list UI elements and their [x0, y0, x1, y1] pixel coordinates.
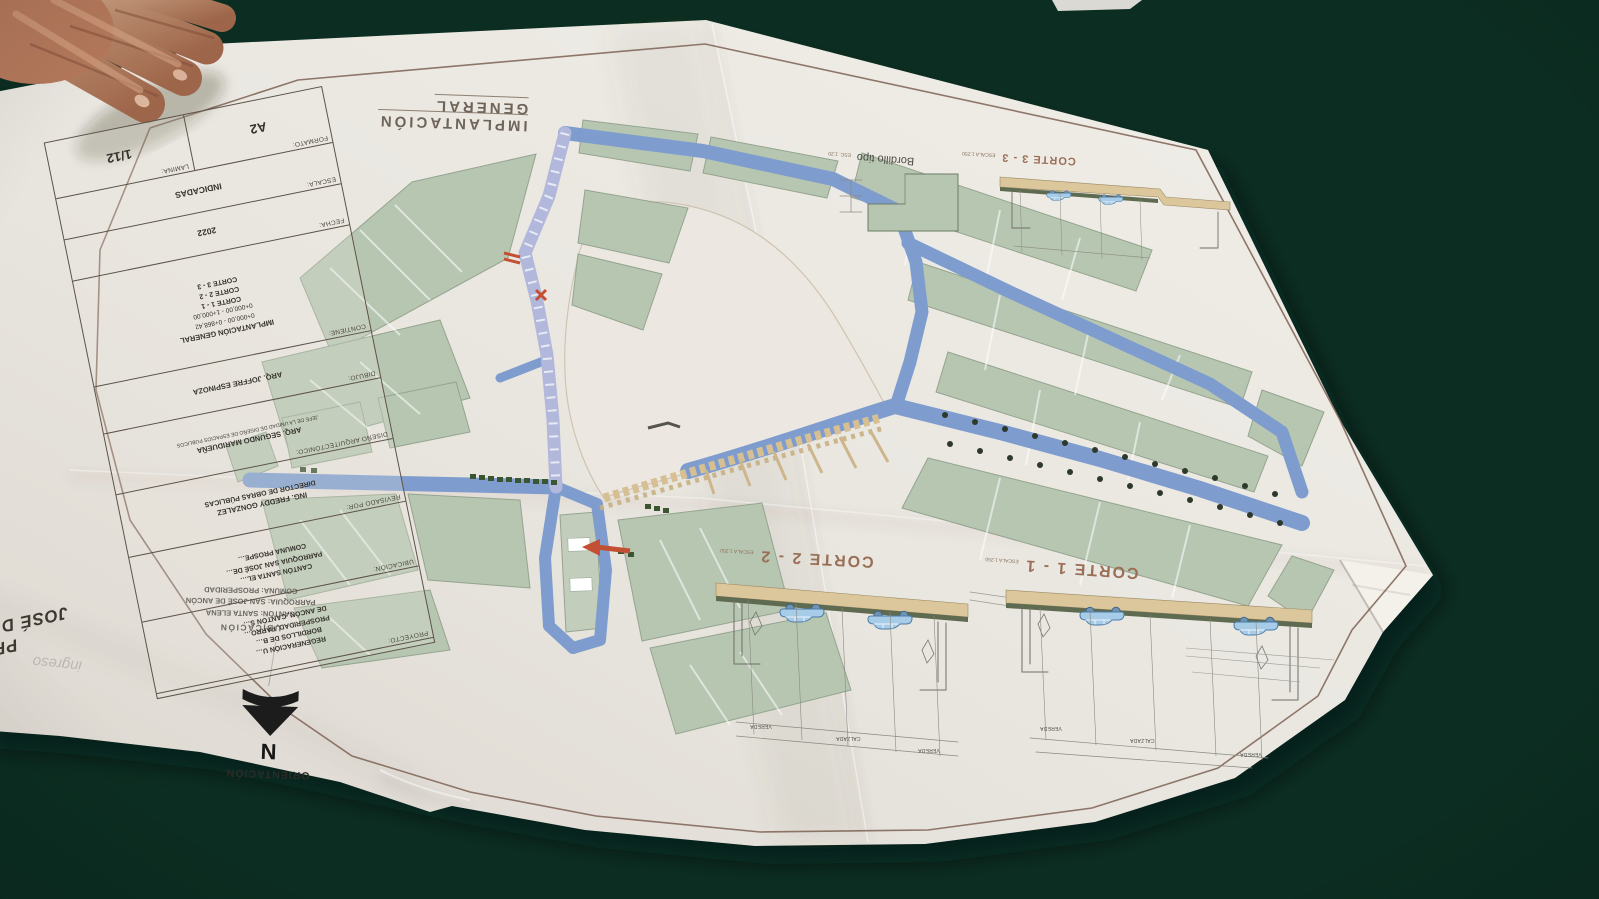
proyecto-label: PROYECTO: — [387, 629, 428, 644]
corte-1-1-label: CORTE 1 - 1ESCALA 1:250 — [985, 558, 1165, 576]
corte-3-3-label: CORTE 3 - 3ESCALA 1:250 — [962, 148, 1087, 166]
dibujo-value: ARQ. JOFFRE ESPINOZA — [192, 368, 283, 397]
corte11-dim-3: VEREDA — [1240, 751, 1262, 757]
corte-3-3-title: CORTE 3 - 3 — [1001, 151, 1076, 167]
corte22-dim-2: CALZADA — [836, 735, 860, 741]
bordillo-label: Bordillo tipoESC. 1:20 — [828, 148, 946, 166]
bordillo-title: Bordillo tipo — [856, 151, 914, 167]
escala-value: INDICADAS — [174, 182, 222, 201]
formato-value: A2 — [248, 120, 267, 138]
corte-3-3-scale: ESCALA 1:250 — [962, 150, 996, 158]
corte-1-1-scale: ESCALA 1:250 — [985, 556, 1019, 564]
corte22-dim-1: VEREDA — [750, 723, 772, 729]
lamina-value: 1/12 — [105, 147, 133, 167]
orientation-label: ORIENTACIÓN — [226, 767, 310, 782]
corte22-dim-3: VEREDA — [918, 747, 940, 753]
fecha-value: 2022 — [197, 226, 218, 240]
photo-of-plan-on-table: IMPLANTACIÓN GENERAL UBICACIÓN CANTÓN: S… — [0, 0, 1599, 899]
background-paper-sliver — [1052, 0, 1142, 11]
corte11-dim-2: CALZADA — [1130, 737, 1154, 743]
north-arrow-icon — [237, 685, 303, 739]
corte-2-2-label: CORTE 2 - 2ESCALA 1:250 — [720, 548, 890, 566]
north-letter: N — [260, 738, 277, 765]
corte-2-2-scale: ESCALA 1:250 — [720, 547, 754, 555]
map-title-text: IMPLANTACIÓN GENERAL — [378, 94, 529, 134]
bordillo-scale: ESC. 1:20 — [828, 150, 851, 158]
corte11-dim-1: VEREDA — [1040, 725, 1062, 731]
